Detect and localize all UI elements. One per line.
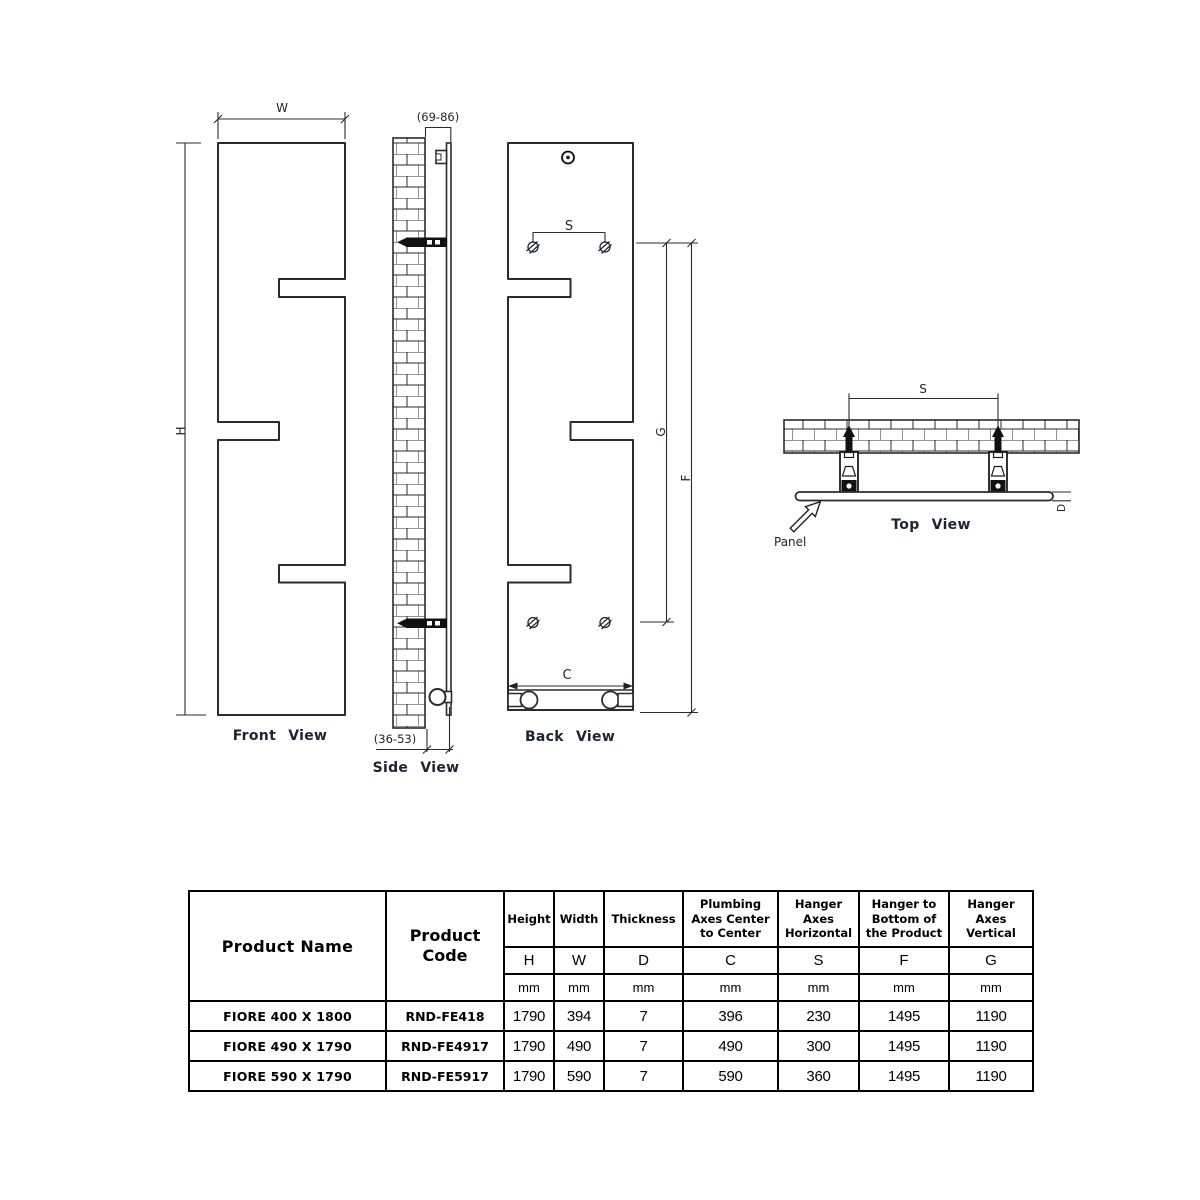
spec-table: Product Name Product Code Height Width T… [188, 890, 1034, 1092]
value-plumbing-axes: 490 [683, 1031, 778, 1061]
table-row: FIORE 490 X 1790 RND-FE4917 1790 490 7 4… [189, 1031, 1033, 1061]
header-product-name: Product Name [189, 891, 386, 1001]
letter-s: S [778, 947, 859, 974]
dim-label-c: C [562, 668, 571, 683]
header-product-code: Product Code [386, 891, 504, 1001]
panel-callout-arrow [787, 497, 825, 535]
side-view-title: Side View [373, 760, 460, 776]
value-height: 1790 [504, 1061, 554, 1091]
side-view-wall [393, 138, 425, 728]
table-row: FIORE 400 X 1800 RND-FE418 1790 394 7 39… [189, 1001, 1033, 1031]
top-view-panel [796, 492, 1054, 501]
product-code: RND-FE418 [386, 1001, 504, 1031]
value-hanger-horizontal: 300 [778, 1031, 859, 1061]
dimension-depth-front [426, 128, 451, 143]
unit-cell: mm [859, 974, 949, 1001]
unit-cell: mm [949, 974, 1033, 1001]
dim-label-d: D [1056, 504, 1068, 512]
value-hanger-horizontal: 230 [778, 1001, 859, 1031]
dim-label-f: F [679, 474, 693, 481]
side-view-panel [447, 143, 452, 715]
value-hanger-horizontal: 360 [778, 1061, 859, 1091]
side-view-valve [430, 689, 452, 705]
value-thickness: 7 [604, 1001, 683, 1031]
value-hanger-vertical: 1190 [949, 1001, 1033, 1031]
value-hanger-bottom: 1495 [859, 1001, 949, 1031]
letter-w: W [554, 947, 604, 974]
header-thickness: Thickness [604, 891, 683, 947]
header-hanger-to-bottom: Hanger to Bottom of the Product [859, 891, 949, 947]
top-view-wall [784, 420, 1079, 453]
front-view-title: Front View [233, 728, 328, 744]
header-plumbing-axes: Plumbing Axes Center to Center [683, 891, 778, 947]
side-view-bracket-upper [397, 238, 447, 248]
product-name: FIORE 400 X 1800 [189, 1001, 386, 1031]
back-view-vent-hole [562, 152, 574, 164]
value-height: 1790 [504, 1001, 554, 1031]
front-view: W H Front View [174, 101, 349, 744]
letter-d: D [604, 947, 683, 974]
side-view-top-clip [436, 151, 447, 164]
value-width: 490 [554, 1031, 604, 1061]
front-view-panel [218, 143, 345, 715]
value-thickness: 7 [604, 1031, 683, 1061]
letter-f: F [859, 947, 949, 974]
unit-cell: mm [554, 974, 604, 1001]
panel-callout-label: Panel [774, 535, 806, 549]
side-view: (69-86) (36-53) Side View [373, 110, 460, 776]
top-view-hanger-left [840, 452, 858, 493]
value-hanger-vertical: 1190 [949, 1061, 1033, 1091]
back-view: S C G F Back View [508, 143, 698, 745]
value-hanger-bottom: 1495 [859, 1061, 949, 1091]
product-code: RND-FE5917 [386, 1061, 504, 1091]
value-hanger-vertical: 1190 [949, 1031, 1033, 1061]
letter-g: G [949, 947, 1033, 974]
value-hanger-bottom: 1495 [859, 1031, 949, 1061]
top-view-title: Top View [891, 517, 970, 533]
dim-label-depth-back: (36-53) [374, 732, 416, 746]
value-width: 394 [554, 1001, 604, 1031]
datasheet-page: W H Front View [0, 0, 1200, 1200]
product-name: FIORE 490 X 1790 [189, 1031, 386, 1061]
dim-label-g: G [654, 427, 668, 436]
dim-label-s-back: S [565, 219, 573, 234]
header-hanger-axes-horizontal: Hanger Axes Horizontal [778, 891, 859, 947]
dim-label-w: W [276, 101, 288, 115]
dim-label-h: H [174, 426, 188, 435]
dimension-w [214, 112, 349, 139]
value-height: 1790 [504, 1031, 554, 1061]
unit-cell: mm [604, 974, 683, 1001]
back-view-title: Back View [525, 729, 615, 745]
value-width: 590 [554, 1061, 604, 1091]
letter-c: C [683, 947, 778, 974]
value-plumbing-axes: 590 [683, 1061, 778, 1091]
letter-h: H [504, 947, 554, 974]
dim-label-s-top: S [919, 382, 927, 396]
top-view: S D Panel Top View [774, 382, 1079, 549]
dimension-d [1052, 492, 1071, 501]
header-height: Height [504, 891, 554, 947]
header-hanger-axes-vertical: Hanger Axes Vertical [949, 891, 1033, 947]
side-view-bracket-lower [397, 619, 447, 629]
dim-label-depth-front: (69-86) [417, 110, 459, 124]
value-plumbing-axes: 396 [683, 1001, 778, 1031]
product-code: RND-FE4917 [386, 1031, 504, 1061]
top-view-hanger-right [989, 452, 1007, 493]
product-name: FIORE 590 X 1790 [189, 1061, 386, 1091]
technical-drawing: W H Front View [0, 0, 1200, 830]
unit-cell: mm [504, 974, 554, 1001]
unit-cell: mm [778, 974, 859, 1001]
unit-cell: mm [683, 974, 778, 1001]
header-width: Width [554, 891, 604, 947]
value-thickness: 7 [604, 1061, 683, 1091]
table-row: FIORE 590 X 1790 RND-FE5917 1790 590 7 5… [189, 1061, 1033, 1091]
